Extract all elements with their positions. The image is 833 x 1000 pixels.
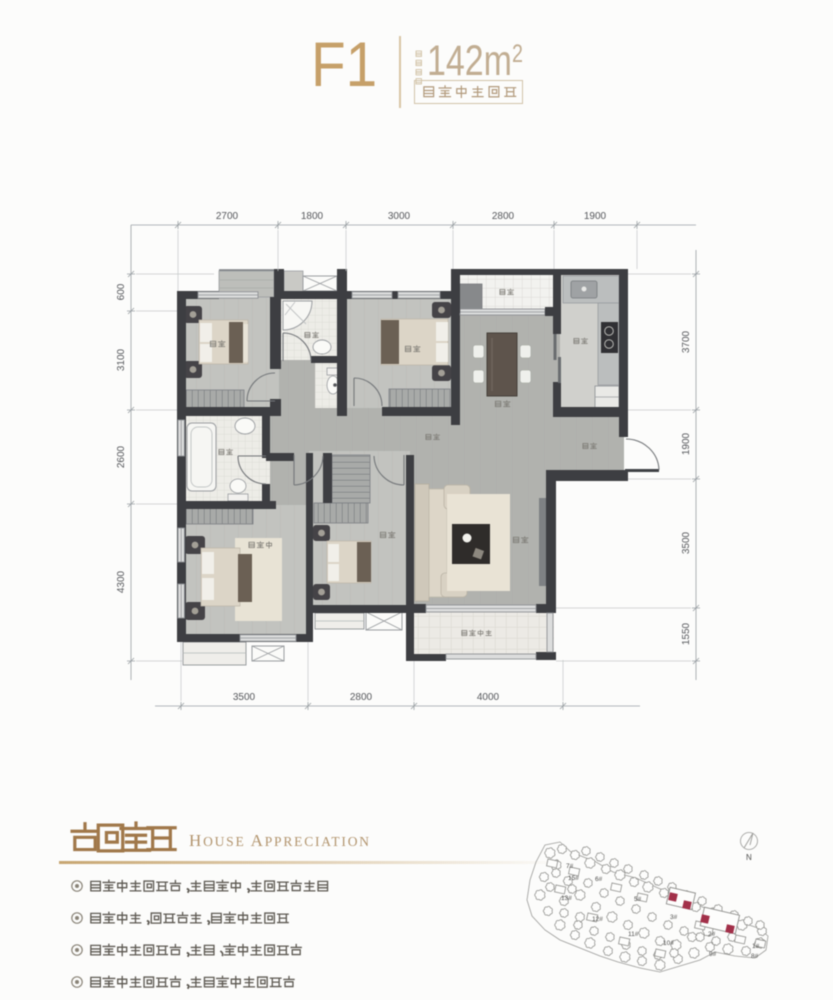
svg-text:3700: 3700 — [681, 330, 692, 353]
svg-text:2800: 2800 — [350, 692, 373, 703]
svg-text:2700: 2700 — [216, 211, 239, 222]
svg-text:2#: 2# — [708, 931, 716, 938]
svg-text:1800: 1800 — [301, 211, 324, 222]
svg-text:3000: 3000 — [388, 211, 411, 222]
svg-text:5#: 5# — [634, 896, 642, 903]
svg-text:1900: 1900 — [584, 211, 607, 222]
svg-text:10#: 10# — [663, 940, 674, 947]
svg-text:2800: 2800 — [492, 211, 515, 222]
svg-text:13#: 13# — [561, 895, 572, 902]
svg-text:2600: 2600 — [116, 445, 127, 468]
svg-text:1550: 1550 — [681, 622, 692, 645]
svg-text:3#: 3# — [670, 914, 678, 921]
svg-text:3500: 3500 — [681, 531, 692, 554]
svg-text:15#: 15# — [568, 875, 579, 882]
svg-text:3100: 3100 — [116, 348, 127, 371]
svg-text:7#: 7# — [566, 863, 574, 870]
svg-text:N: N — [746, 853, 752, 862]
svg-text:11#: 11# — [628, 931, 639, 938]
svg-text:4300: 4300 — [116, 570, 127, 593]
svg-text:4000: 4000 — [477, 692, 500, 703]
svg-text:1#: 1# — [752, 943, 760, 950]
svg-text:1900: 1900 — [681, 432, 692, 455]
svg-text:6#: 6# — [595, 876, 603, 883]
svg-text:600: 600 — [116, 283, 127, 300]
svg-text:12#: 12# — [592, 916, 603, 923]
svg-text:9#: 9# — [709, 951, 717, 958]
svg-text:8#: 8# — [751, 953, 759, 960]
svg-text:3500: 3500 — [233, 692, 256, 703]
